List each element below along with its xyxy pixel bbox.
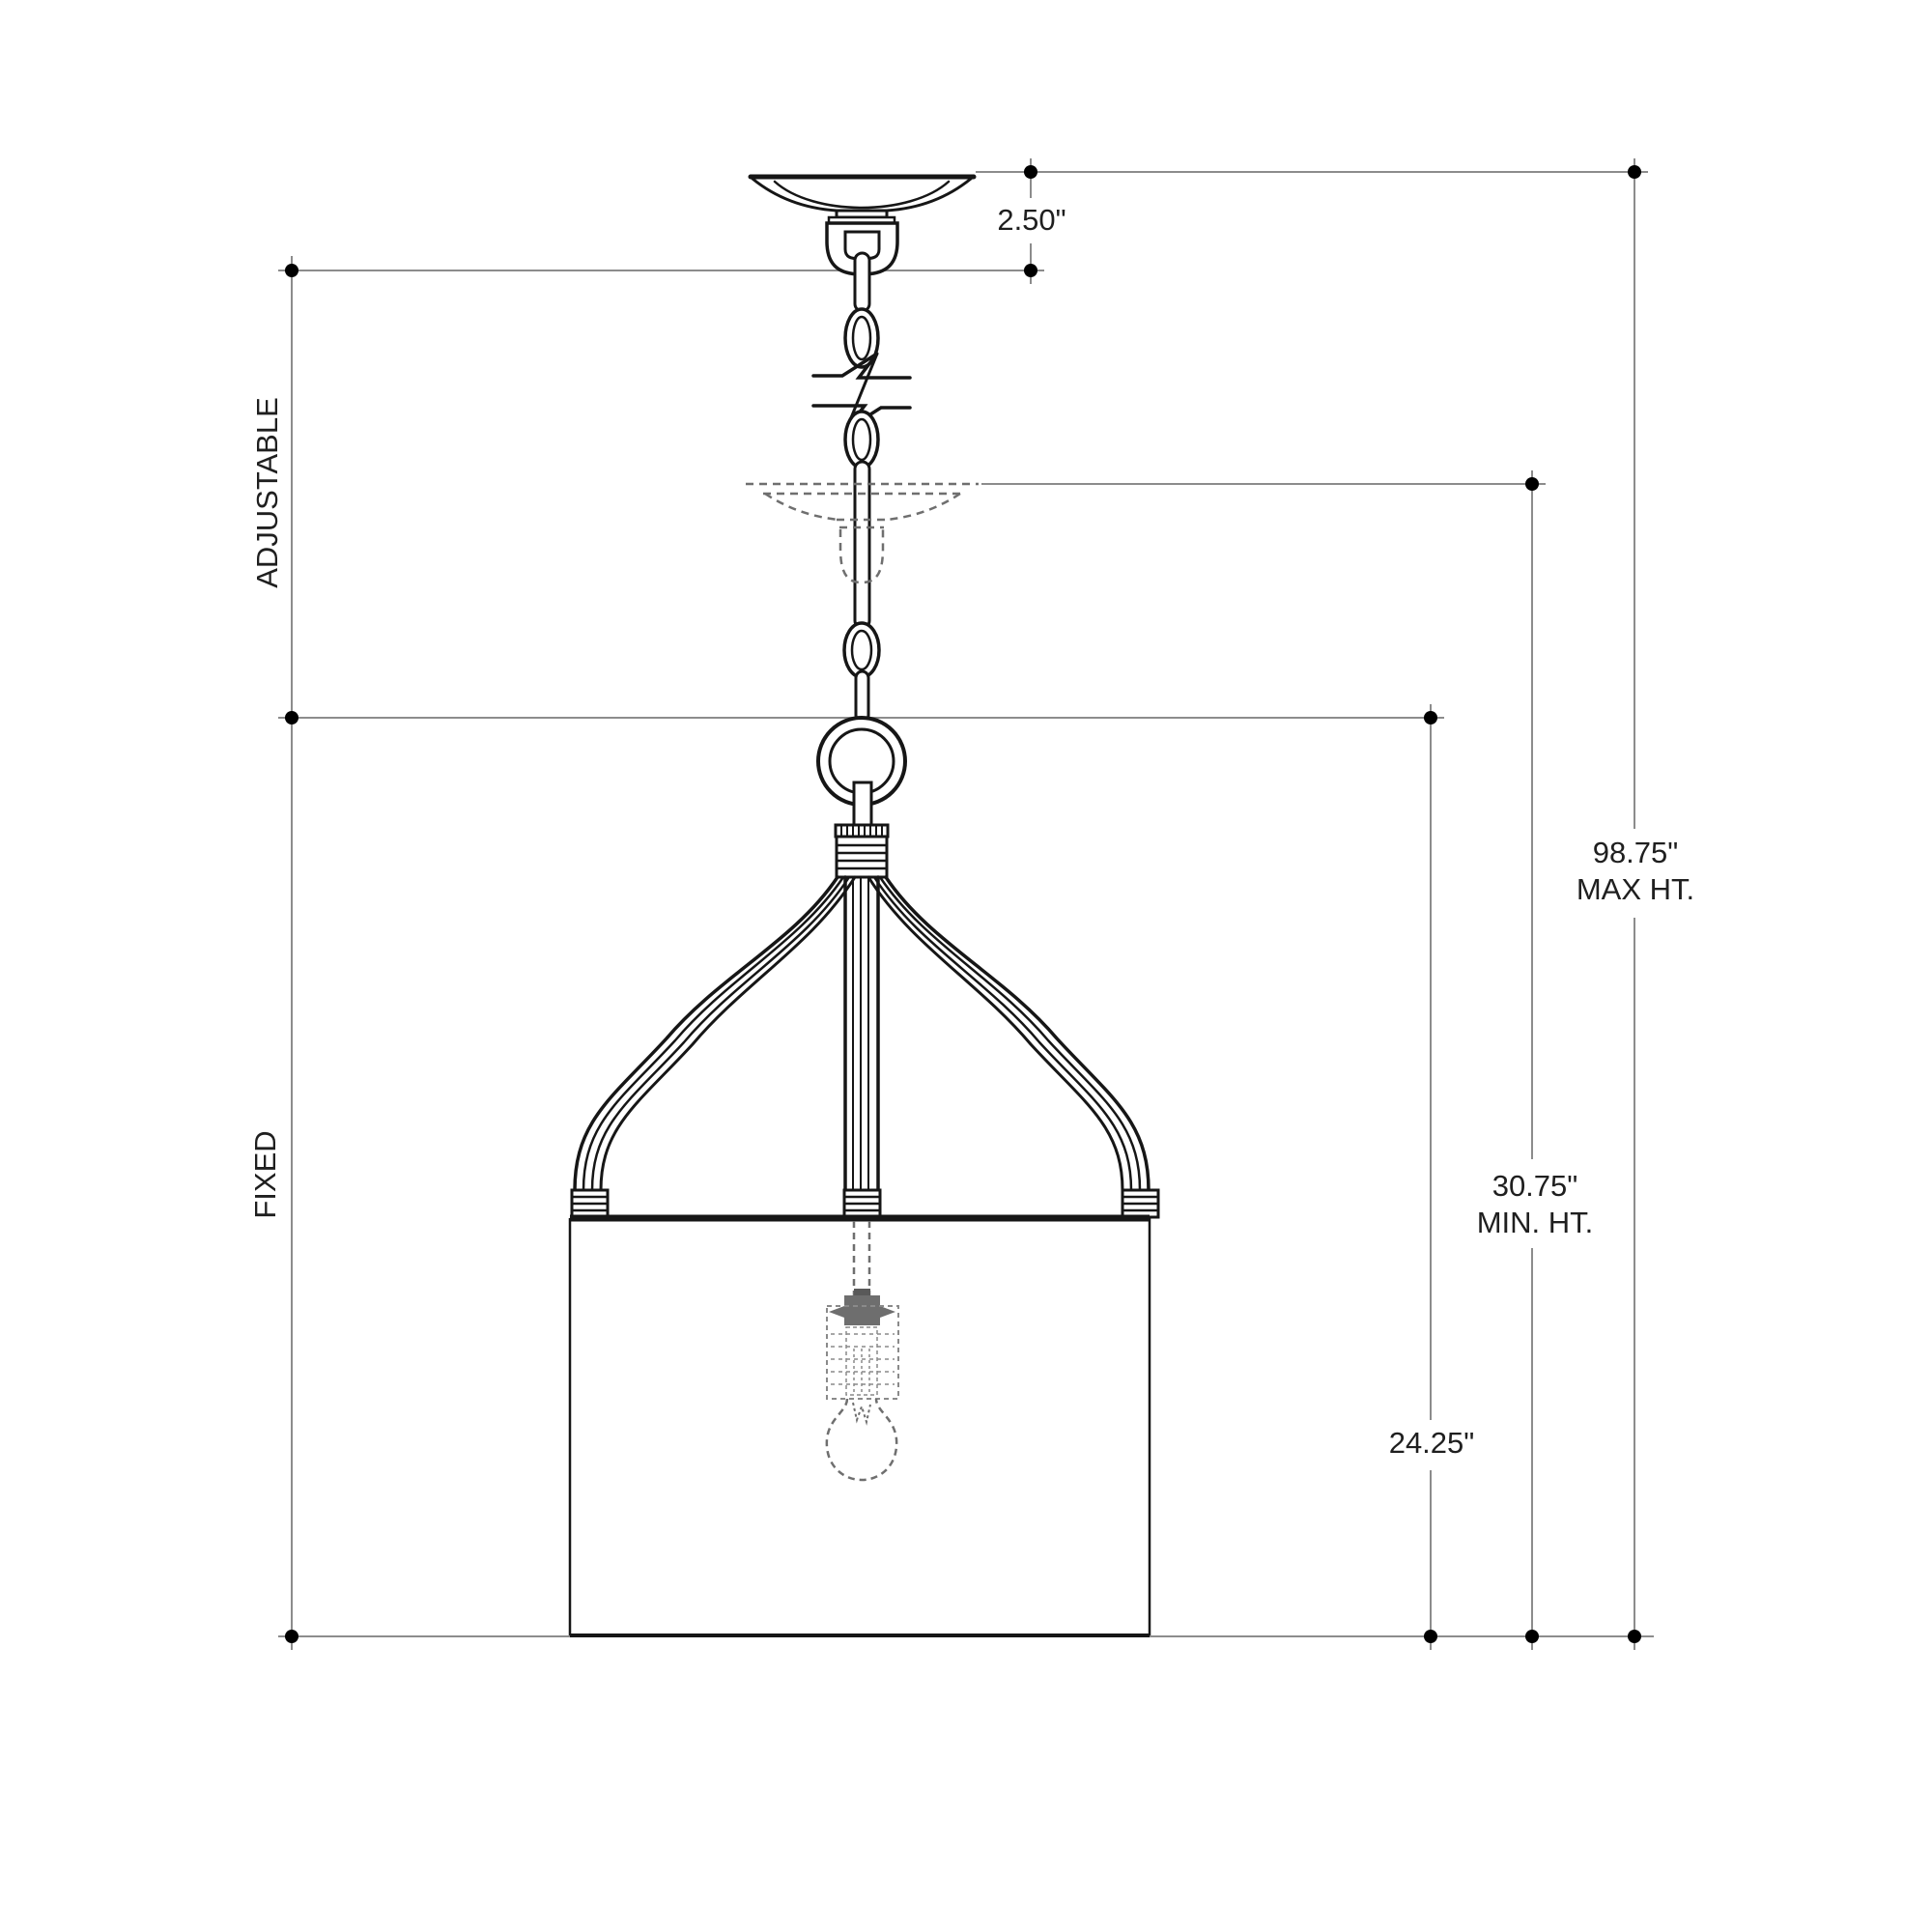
left-arm-line-4 [601, 877, 855, 1190]
left-arm-line-3 [592, 877, 849, 1190]
ghost-canopy-side-left [765, 494, 838, 520]
dim-label-max-height-suffix: MAX HT. [1577, 872, 1694, 906]
left-arm-line-2 [583, 877, 843, 1190]
dim-label-fixture-height: 24.25" [1389, 1426, 1475, 1460]
right-arm-line-2 [880, 877, 1140, 1190]
left-foot [572, 1190, 608, 1217]
cage-arms [575, 877, 1149, 1190]
socket-screw-right [880, 1306, 895, 1318]
hanging-chain [813, 253, 910, 722]
arm-feet [572, 1190, 1158, 1217]
right-arm-line-1 [886, 877, 1149, 1190]
drum-shade-body [570, 1218, 1150, 1635]
dimension-endpoint-dots [285, 165, 1641, 1643]
hidden-socket-and-bulb [827, 1221, 898, 1480]
chain-link-narrow-3 [856, 671, 868, 722]
fixture-dimension-drawing: 2.50" 98.75" MAX HT. 30.75" MIN. HT. 24.… [0, 0, 1932, 1932]
dim-label-min-height-value: 30.75" [1492, 1169, 1578, 1203]
center-column [845, 877, 878, 1190]
right-arm-line-4 [868, 877, 1122, 1190]
dim-label-fixed: FIXED [248, 1130, 282, 1218]
dimension-labels: 2.50" 98.75" MAX HT. 30.75" MIN. HT. 24.… [248, 203, 1694, 1460]
collar-knurl-band [836, 825, 888, 837]
dim-label-min-height-suffix: MIN. HT. [1477, 1206, 1594, 1239]
chain-link-narrow-2 [855, 462, 869, 628]
right-arm-line-3 [874, 877, 1131, 1190]
left-arm-line-1 [575, 877, 838, 1190]
hidden-bulb-outline [827, 1399, 896, 1480]
collar-band-block [837, 837, 887, 877]
center-foot [844, 1190, 880, 1217]
socket-screw-left [829, 1306, 844, 1318]
chain-link-narrow-1 [855, 253, 869, 311]
ring-strap [854, 782, 871, 825]
socket-cap [844, 1295, 880, 1325]
dimension-drawing-page: 2.50" 98.75" MAX HT. 30.75" MIN. HT. 24.… [0, 0, 1932, 1932]
dim-label-canopy-height: 2.50" [997, 203, 1065, 237]
canopy-bowl [753, 179, 971, 211]
dim-label-adjustable: ADJUSTABLE [250, 397, 284, 588]
hidden-bulb-filament [853, 1403, 870, 1422]
ghost-canopy-side-right [887, 494, 960, 520]
dim-label-max-height-value: 98.75" [1593, 836, 1679, 869]
right-foot [1122, 1190, 1158, 1217]
hanger-ring-assembly [818, 718, 905, 877]
